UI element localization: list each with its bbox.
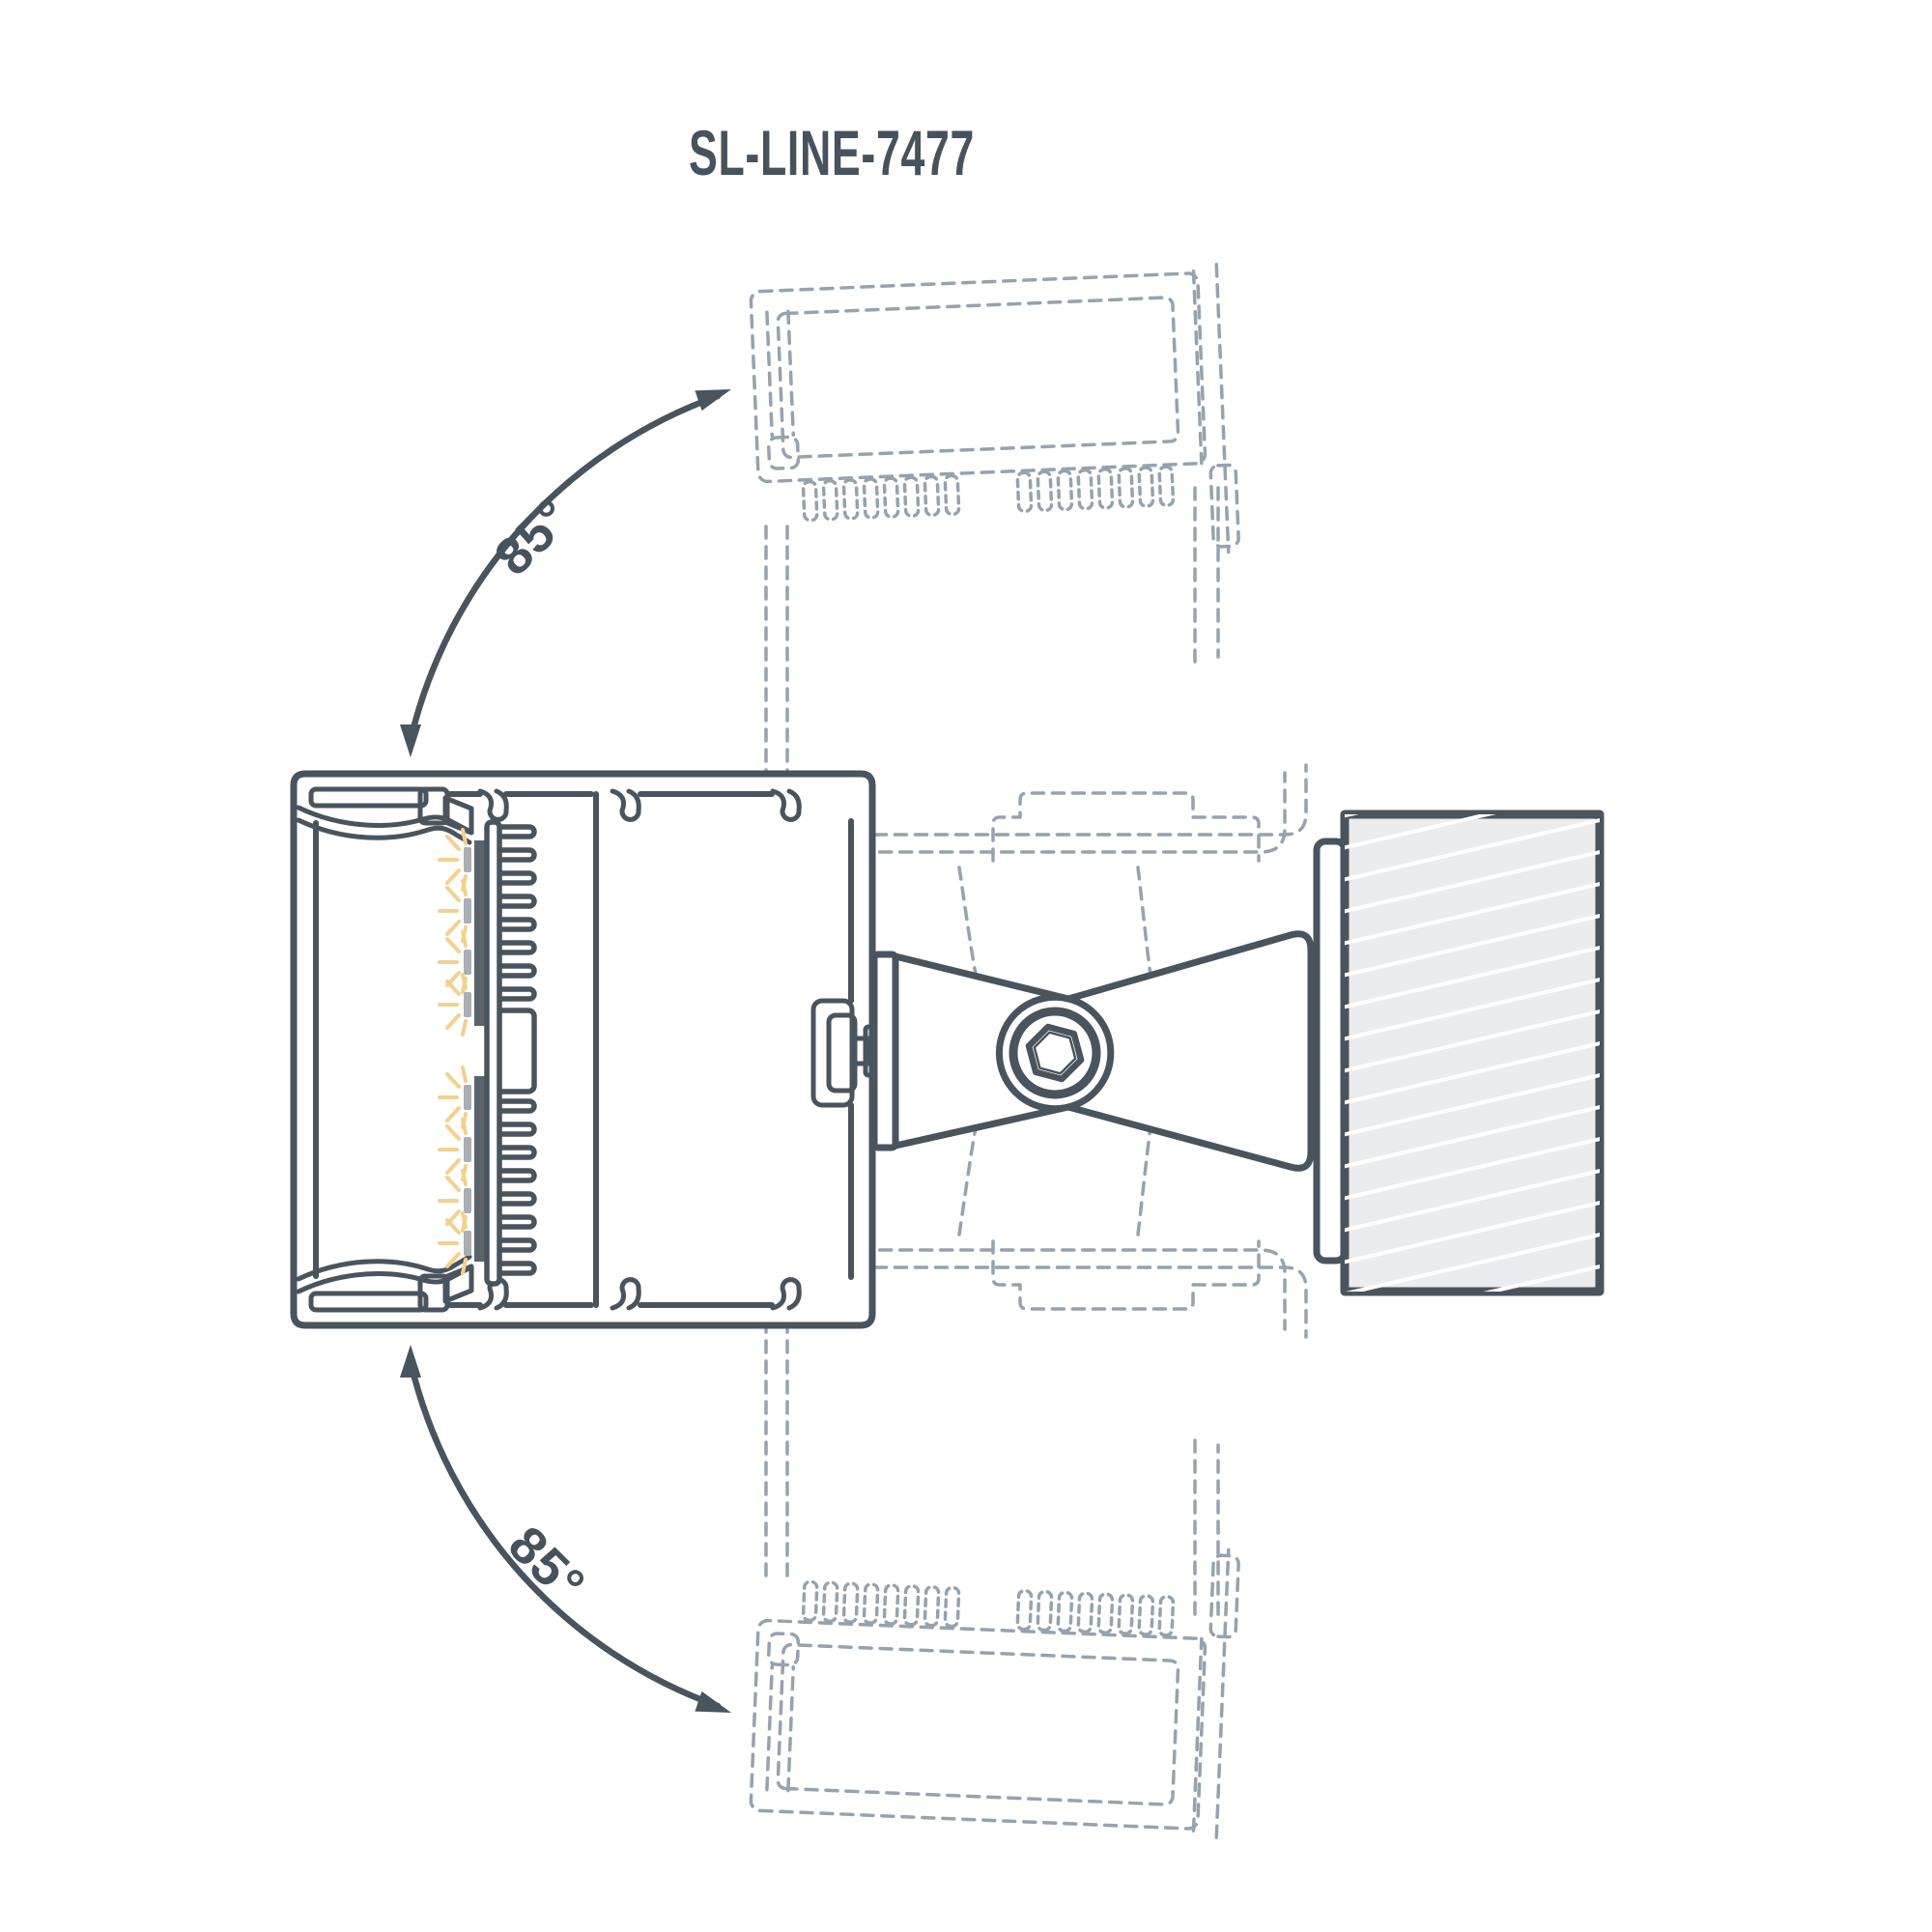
bracket-arm-right [1068, 934, 1311, 1169]
luminaire-housing [294, 774, 872, 1325]
rotation-arrow-icon [695, 1691, 734, 1723]
wall-section [1317, 754, 1608, 1327]
rotation-arrow-icon [400, 1345, 421, 1378]
technical-drawing: SL-LINE-7477 85° 85° [0, 0, 1932, 1932]
diagram-page: SL-LINE-7477 85° 85° [0, 0, 1932, 1932]
rotation-arrow-icon [695, 380, 734, 412]
hex-socket-screw-icon [1013, 1011, 1096, 1094]
rotation-arc-bottom [400, 1345, 735, 1722]
mounting-bracket [874, 934, 1311, 1169]
angle-label-top: 85° [484, 488, 582, 586]
product-title: SL-LINE-7477 [689, 117, 975, 188]
ghost-position-top [751, 264, 1239, 571]
rotation-arc-top [400, 380, 735, 757]
luminaire-cross-section [294, 774, 874, 1325]
heatsink-spine [487, 822, 499, 1284]
rotation-arrow-icon [400, 724, 421, 757]
ghost-position-bottom [751, 1530, 1239, 1837]
heatsink-center-boss [497, 1010, 534, 1092]
angle-label-bottom: 85° [497, 1516, 596, 1614]
